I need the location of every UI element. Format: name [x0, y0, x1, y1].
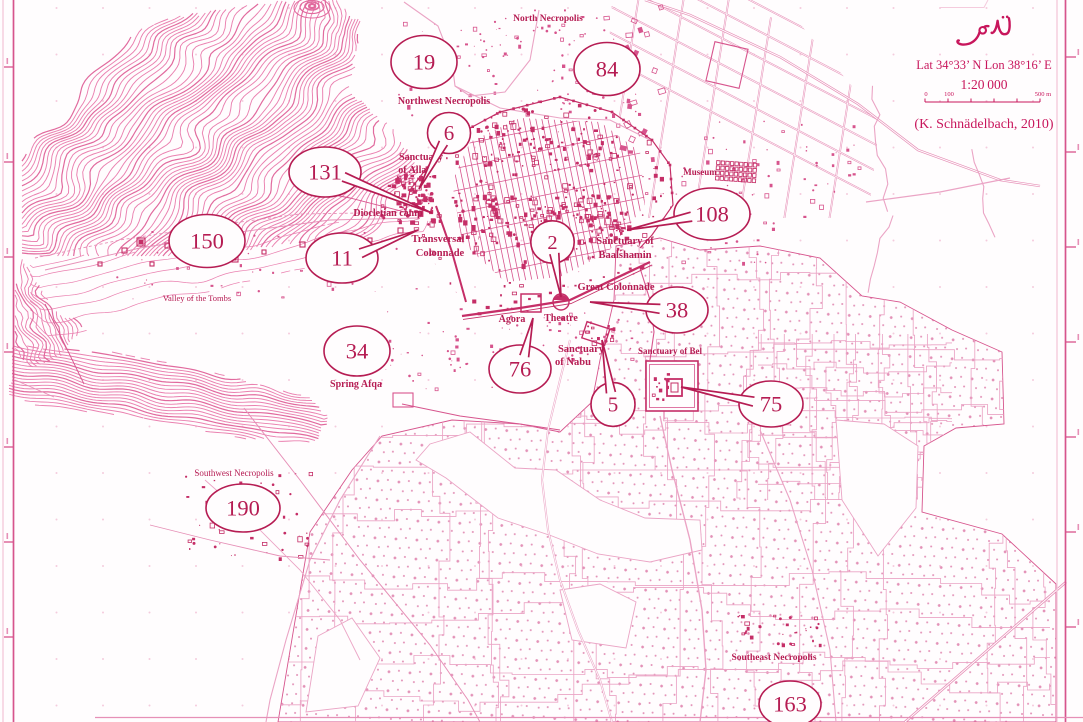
svg-text:Spring Afqa: Spring Afqa: [330, 379, 382, 390]
svg-text:Diocletian camp: Diocletian camp: [353, 208, 423, 219]
svg-text:Sanctuary of Bel: Sanctuary of Bel: [638, 346, 702, 356]
svg-text:Colonnade: Colonnade: [416, 248, 465, 259]
svg-text:34: 34: [346, 339, 369, 364]
svg-text:100: 100: [944, 91, 954, 98]
svg-text:Transversal: Transversal: [412, 234, 465, 245]
svg-text:Sanctuary of: Sanctuary of: [596, 236, 654, 247]
svg-text:108: 108: [695, 202, 729, 227]
svg-text:19: 19: [413, 50, 436, 75]
svg-text:Lat 34°33’ N Lon 38°16’ E: Lat 34°33’ N Lon 38°16’ E: [916, 58, 1052, 72]
svg-text:2: 2: [547, 232, 557, 254]
svg-text:0: 0: [924, 91, 927, 98]
svg-text:38: 38: [666, 298, 689, 323]
svg-text:131: 131: [308, 160, 342, 185]
svg-text:Southeast Necropolis: Southeast Necropolis: [731, 653, 816, 663]
svg-text:of Nabu: of Nabu: [555, 357, 591, 368]
svg-text:11: 11: [331, 246, 353, 271]
svg-text:500 m: 500 m: [1035, 91, 1051, 98]
svg-text:6: 6: [444, 121, 455, 145]
svg-text:190: 190: [226, 496, 260, 521]
svg-text:1:20 000: 1:20 000: [961, 77, 1008, 92]
svg-text:163: 163: [773, 692, 807, 717]
svg-text:Agora: Agora: [499, 314, 526, 325]
svg-text:North Necropolis: North Necropolis: [513, 14, 583, 24]
svg-text:(K. Schnädelbach, 2010): (K. Schnädelbach, 2010): [914, 117, 1054, 132]
svg-text:Museum: Museum: [683, 167, 717, 177]
svg-text:Northwest Necropolis: Northwest Necropolis: [398, 96, 490, 107]
svg-text:84: 84: [596, 57, 619, 82]
svg-text:Great Colonnade: Great Colonnade: [577, 282, 654, 293]
svg-text:Southwest Necropolis: Southwest Necropolis: [194, 468, 274, 478]
svg-text:75: 75: [760, 392, 783, 417]
svg-text:Theatre: Theatre: [544, 313, 578, 324]
svg-text:150: 150: [190, 229, 224, 254]
svg-text:Baalshamin: Baalshamin: [598, 250, 651, 261]
svg-text:Valley of the Tombs: Valley of the Tombs: [163, 293, 231, 303]
svg-text:5: 5: [608, 393, 619, 417]
svg-text:Sanctuary: Sanctuary: [558, 344, 605, 355]
svg-text:76: 76: [509, 357, 532, 382]
